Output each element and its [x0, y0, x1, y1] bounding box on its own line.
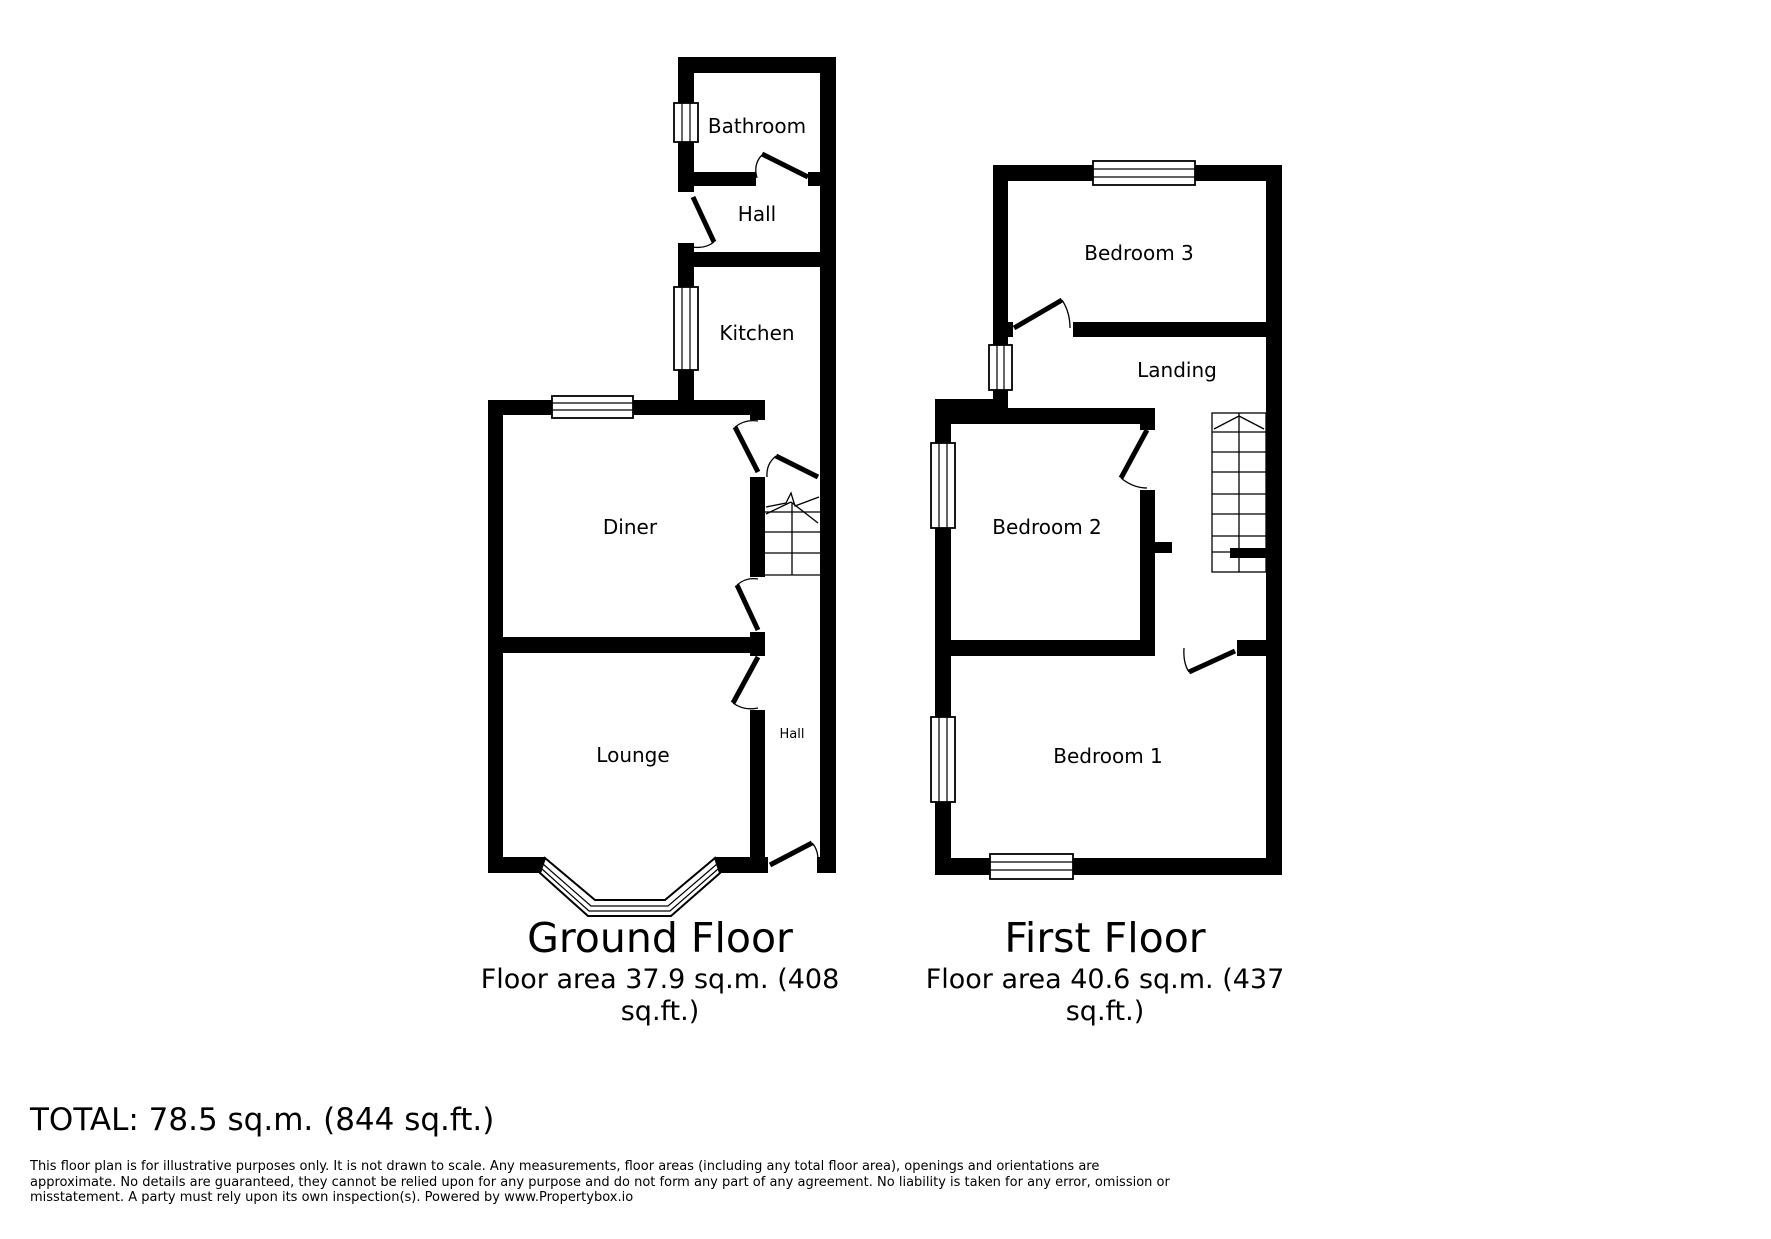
disclaimer-line3: misstatement. A party must rely upon its… — [30, 1190, 1190, 1206]
wall-segment — [503, 637, 750, 653]
first-floor-area: Floor area 40.6 sq.m. (437 sq.ft.) — [870, 964, 1340, 1028]
front-door — [770, 843, 818, 865]
stairs-hall-door — [767, 456, 818, 477]
wall-segment — [694, 172, 756, 186]
disclaimer-line1: This floor plan is for illustrative purp… — [30, 1159, 1190, 1175]
wall-segment — [935, 802, 951, 858]
kitchen-window — [674, 287, 698, 370]
wall-segment — [1140, 408, 1155, 430]
wall-segment — [715, 857, 768, 873]
room-label-hall-top: Hall — [738, 202, 776, 226]
wall-segment — [678, 73, 694, 103]
diner-window — [552, 396, 633, 418]
bedroom2-window — [931, 443, 955, 528]
wall-segment — [935, 858, 990, 875]
back-door — [693, 197, 714, 247]
wall-segment — [993, 181, 1008, 345]
wall-segment — [750, 400, 765, 420]
wall-segment — [1140, 490, 1155, 640]
wall-segment — [750, 632, 765, 656]
bedroom3-window — [1093, 161, 1195, 185]
disclaimer-line2: approximate. No details are guaranteed, … — [30, 1175, 1190, 1191]
room-label-hall-corridor: Hall — [780, 727, 805, 742]
ground-floor-area: Floor area 37.9 sq.m. (408 sq.ft.) — [425, 964, 895, 1028]
ground-floor-title: Ground Floor — [430, 914, 890, 962]
wall-segment — [750, 710, 765, 857]
room-label-bedroom2: Bedroom 2 — [992, 515, 1102, 539]
first-floor-title: First Floor — [875, 914, 1335, 962]
wall-segment — [1230, 548, 1266, 558]
wall-segment — [808, 172, 820, 186]
wall-segment — [488, 400, 503, 873]
wall-segment — [951, 640, 1155, 656]
diner-hall-door — [737, 579, 758, 630]
lounge-door — [733, 657, 758, 709]
total-area-label: TOTAL: 78.5 sq.m. (844 sq.ft.) — [30, 1102, 494, 1138]
bathroom-door — [756, 154, 808, 178]
bedroom1-side-window — [931, 717, 955, 802]
room-label-kitchen: Kitchen — [719, 321, 794, 345]
room-label-lounge: Lounge — [596, 743, 669, 767]
room-label-diner: Diner — [603, 515, 658, 539]
wall-segment — [951, 408, 1140, 424]
first-floor-area-line2: sq.ft.) — [870, 996, 1340, 1028]
first-floor-doors — [1014, 300, 1235, 672]
wall-segment — [1073, 858, 1266, 875]
bedroom3-door — [1014, 300, 1070, 328]
wall-segment — [1266, 181, 1282, 875]
floorplan-page: Bathroom Hall Kitchen Diner Lounge Hall — [0, 0, 1771, 1239]
wall-segment — [1008, 322, 1013, 337]
wall-segment — [1155, 542, 1172, 553]
bedroom1-front-window — [990, 854, 1073, 879]
disclaimer: This floor plan is for illustrative purp… — [30, 1159, 1190, 1206]
wall-segment — [678, 243, 694, 287]
first-floor-area-line1: Floor area 40.6 sq.m. (437 — [870, 964, 1340, 996]
wall-segment — [694, 252, 820, 267]
wall-segment — [678, 57, 836, 73]
first-floor-walls — [935, 165, 1282, 875]
landing-window — [989, 345, 1012, 390]
ground-staircase — [765, 493, 820, 575]
room-label-bathroom: Bathroom — [708, 114, 806, 138]
room-label-bedroom3: Bedroom 3 — [1084, 241, 1194, 265]
wall-segment — [488, 857, 545, 873]
bay-window — [540, 858, 720, 916]
room-label-landing: Landing — [1137, 358, 1217, 382]
wall-segment — [1237, 640, 1266, 656]
ground-floor-area-line2: sq.ft.) — [425, 996, 895, 1028]
wall-segment — [935, 528, 951, 717]
floor-plan-ground: Bathroom Hall Kitchen Diner Lounge Hall — [488, 57, 836, 916]
floorplan-drawing: Bathroom Hall Kitchen Diner Lounge Hall — [0, 0, 1771, 1239]
bedroom1-door — [1184, 648, 1235, 672]
floor-plan-first: Bedroom 3 Landing Bedroom 2 Bedroom 1 — [931, 161, 1282, 879]
wall-segment — [817, 857, 836, 873]
stair-up-arrow — [1214, 416, 1239, 429]
ground-floor-windows — [540, 103, 720, 916]
wall-segment — [750, 477, 765, 577]
wall-segment — [1073, 322, 1266, 337]
wall-segment — [820, 73, 836, 873]
wall-segment — [935, 412, 951, 443]
ground-floor-area-line1: Floor area 37.9 sq.m. (408 — [425, 964, 895, 996]
bathroom-window — [674, 103, 698, 142]
room-label-bedroom1: Bedroom 1 — [1053, 744, 1163, 768]
diner-kitchen-door — [735, 421, 758, 472]
wall-segment — [633, 400, 694, 415]
bedroom2-door — [1121, 430, 1147, 488]
wall-segment — [678, 142, 694, 192]
